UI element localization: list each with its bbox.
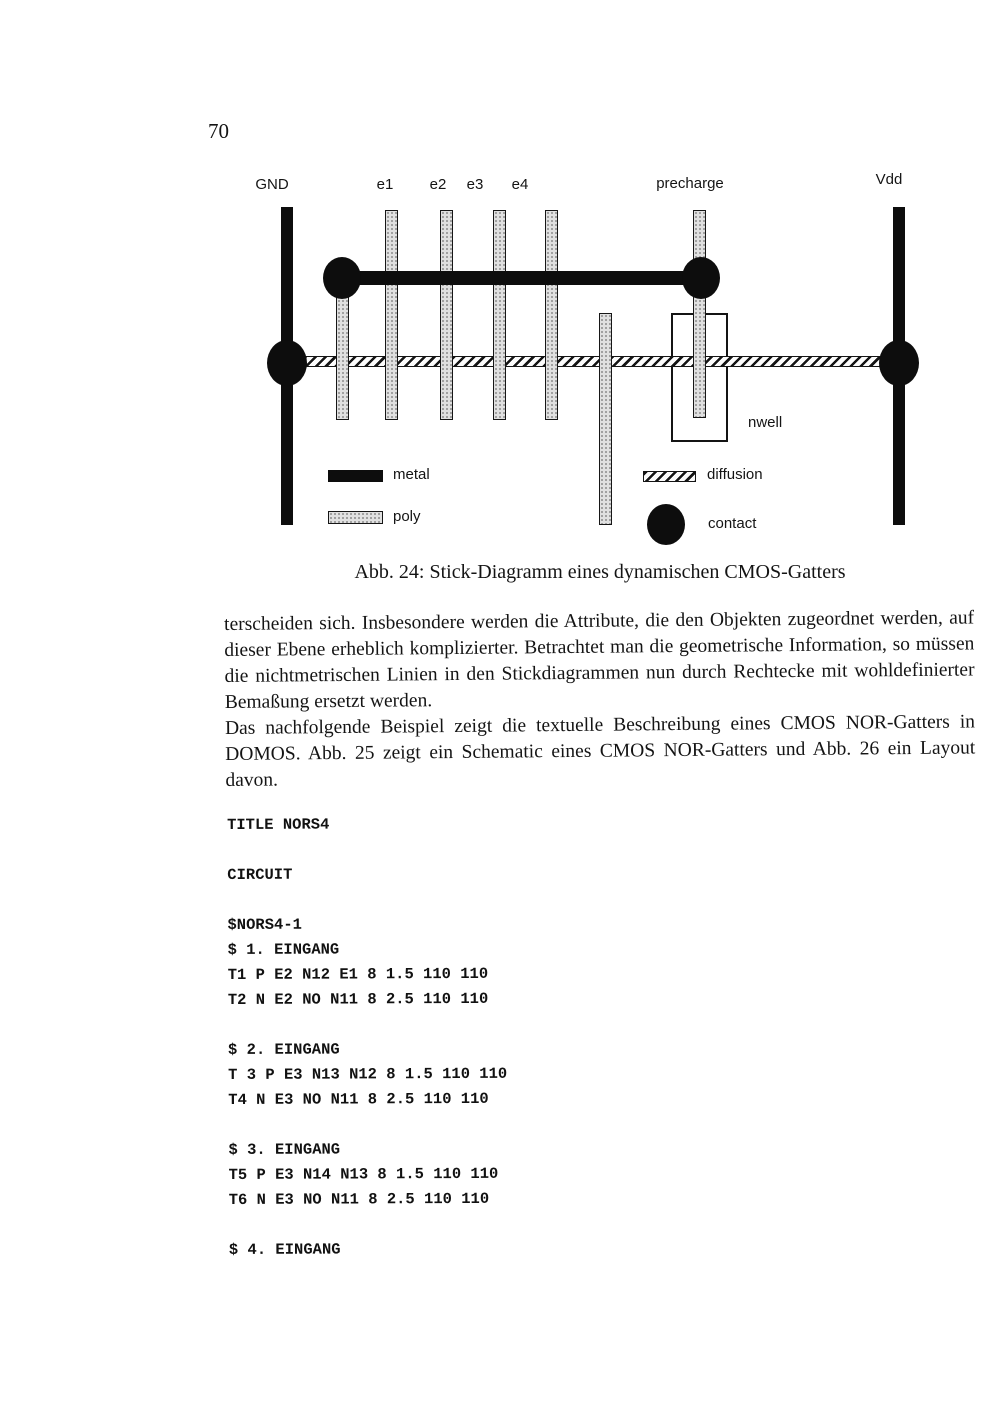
paragraph-1: terscheiden sich. Insbesondere werden di… xyxy=(224,605,975,716)
poly-wire-e3 xyxy=(493,210,506,420)
code-line xyxy=(227,886,787,913)
poly-wire-e4 xyxy=(545,210,558,420)
label-gnd: GND xyxy=(247,176,297,193)
legend-diffusion-label: diffusion xyxy=(707,466,787,483)
code-line: TITLE NORS4 xyxy=(227,811,787,838)
poly-wire-e2 xyxy=(440,210,453,420)
legend-metal-swatch xyxy=(328,470,383,482)
code-line: T4 N E3 NO N11 8 2.5 110 110 xyxy=(228,1086,788,1113)
code-line: CIRCUIT xyxy=(227,861,787,888)
label-nwell: nwell xyxy=(748,414,808,431)
legend-contact-swatch xyxy=(647,504,685,545)
legend-poly-swatch xyxy=(328,511,383,524)
code-line: T 3 P E3 N13 N12 8 1.5 110 110 xyxy=(228,1061,788,1088)
paragraph-2: Das nachfolgende Beispiel zeigt die text… xyxy=(225,709,976,794)
code-line: T6 N E3 NO N11 8 2.5 110 110 xyxy=(229,1186,789,1213)
stick-diagram: GND e1 e2 e3 e4 precharge Vdd nwell meta… xyxy=(0,0,1000,560)
code-line: T1 P E2 N12 E1 8 1.5 110 110 xyxy=(228,961,788,988)
document-page: 70 GND e1 e2 e3 e4 precharge Vdd nwell xyxy=(0,0,1000,1425)
figure-caption: Abb. 24: Stick-Diagramm eines dynamische… xyxy=(250,561,950,584)
poly-wire-precharge xyxy=(693,210,706,418)
poly-wire-input xyxy=(336,278,349,420)
legend-metal-label: metal xyxy=(393,466,453,483)
label-e2: e2 xyxy=(418,176,458,193)
label-precharge: precharge xyxy=(640,175,740,192)
label-vdd: Vdd xyxy=(864,171,914,188)
code-line: $ 2. EINGANG xyxy=(228,1036,788,1063)
legend-poly-label: poly xyxy=(393,508,453,525)
metal-bus xyxy=(340,271,705,285)
code-line xyxy=(227,836,787,863)
contact-vdd xyxy=(879,340,919,386)
code-line: $ 4. EINGANG xyxy=(229,1236,789,1263)
label-e1: e1 xyxy=(365,176,405,193)
code-line xyxy=(228,1111,788,1138)
contact-metal-left xyxy=(323,257,361,299)
diffusion-wire xyxy=(283,356,899,367)
poly-wire-e1 xyxy=(385,210,398,420)
poly-wire-output xyxy=(599,313,612,525)
code-listing: TITLE NORS4 CIRCUIT $NORS4-1 $ 1. EINGAN… xyxy=(227,811,789,1263)
label-e3: e3 xyxy=(455,176,495,193)
contact-metal-right xyxy=(682,257,720,299)
code-line: $NORS4-1 xyxy=(227,911,787,938)
contact-gnd xyxy=(267,340,307,386)
code-line: $ 3. EINGANG xyxy=(228,1136,788,1163)
code-line xyxy=(228,1011,788,1038)
code-line: T2 N E2 NO N11 8 2.5 110 110 xyxy=(228,986,788,1013)
body-text: terscheiden sich. Insbesondere werden di… xyxy=(224,605,976,794)
legend-diffusion-swatch xyxy=(643,471,696,482)
code-line: T5 P E3 N14 N13 8 1.5 110 110 xyxy=(229,1161,789,1188)
code-line xyxy=(229,1211,789,1238)
code-line: $ 1. EINGANG xyxy=(228,936,788,963)
label-e4: e4 xyxy=(500,176,540,193)
legend-contact-label: contact xyxy=(708,515,788,532)
